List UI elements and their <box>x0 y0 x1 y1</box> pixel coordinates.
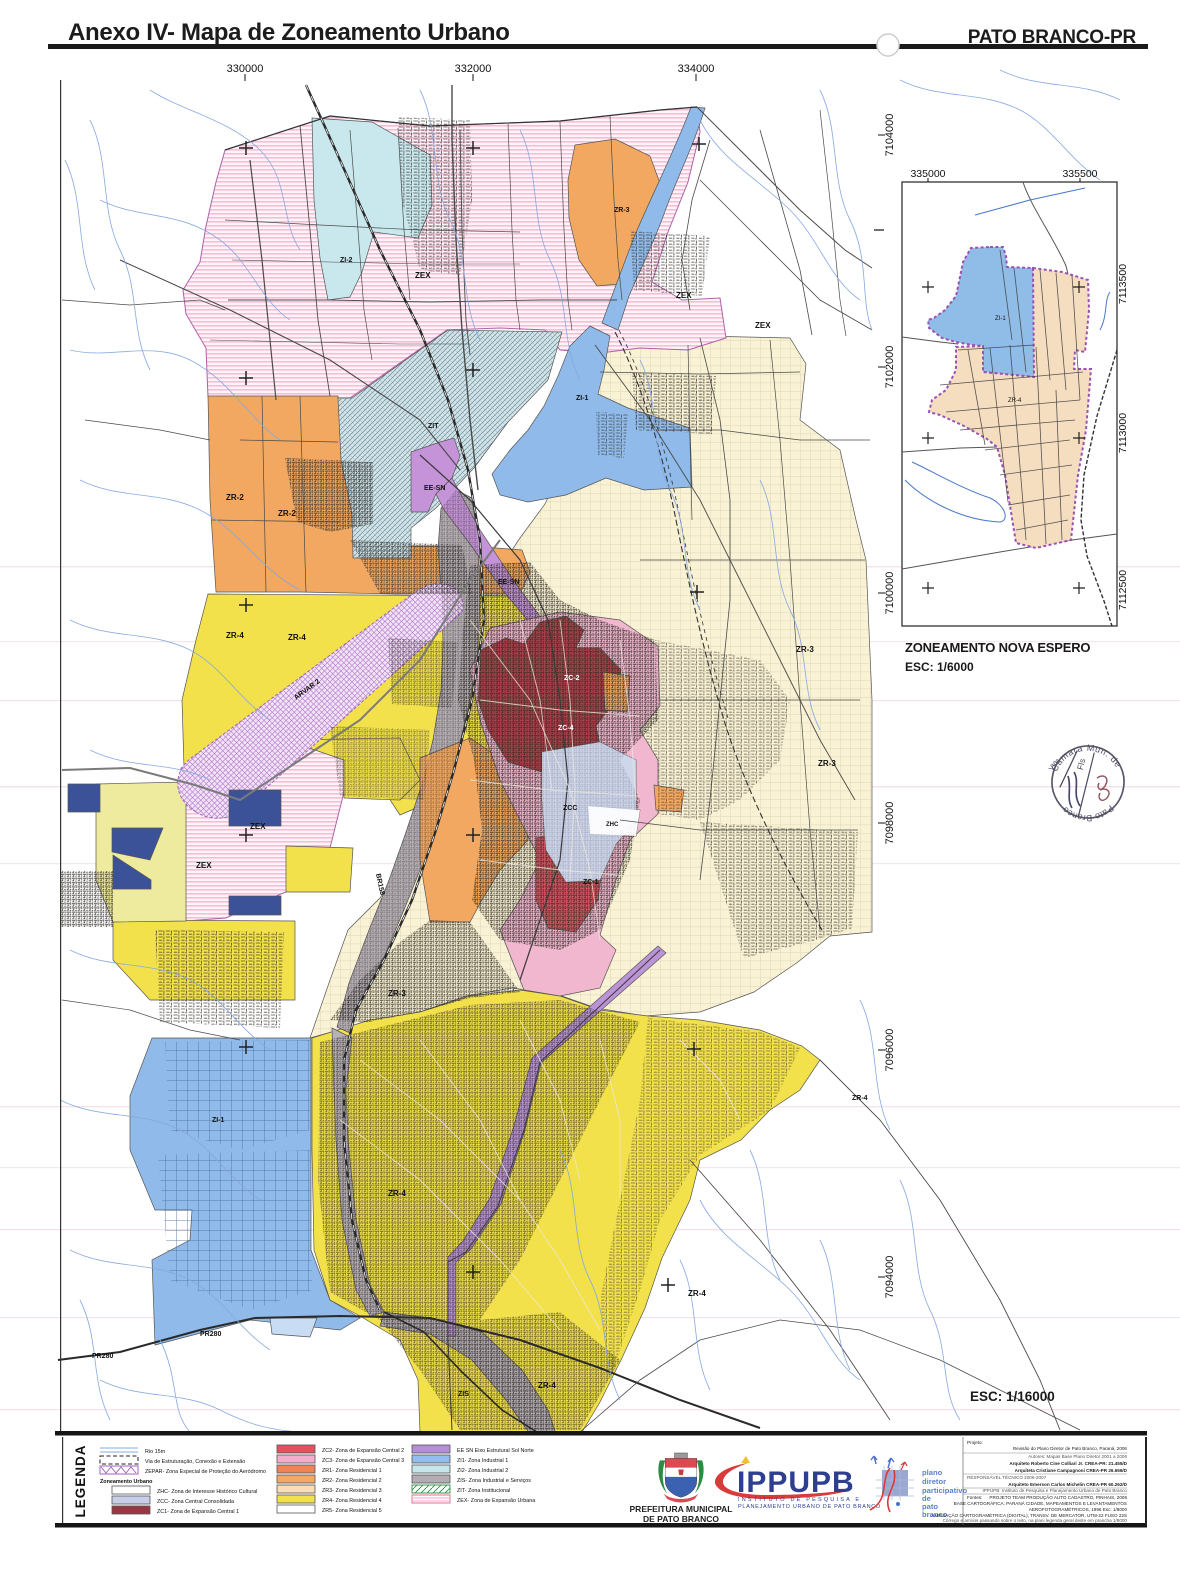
svg-text:PLANEJAMENTO URBANO DE PATO BR: PLANEJAMENTO URBANO DE PATO BRANCO <box>738 1504 881 1510</box>
svg-text:7100000: 7100000 <box>884 572 896 615</box>
svg-text:ZEX- Zona de Expansão Urbana: ZEX- Zona de Expansão Urbana <box>457 1498 535 1504</box>
svg-text:7098000: 7098000 <box>884 802 896 845</box>
svg-text:ZC-2: ZC-2 <box>564 675 580 682</box>
svg-text:ZR2- Zona Residencial 2: ZR2- Zona Residencial 2 <box>322 1478 382 1484</box>
svg-text:334000: 334000 <box>678 63 715 75</box>
svg-text:EE-SN: EE-SN <box>424 485 445 492</box>
svg-text:330000: 330000 <box>227 63 264 75</box>
svg-text:Zoneamento Urbano: Zoneamento Urbano <box>100 1479 153 1485</box>
svg-text:LEGENDA: LEGENDA <box>73 1444 88 1517</box>
svg-text:Anexo IV- Mapa de Zoneamento: Anexo IV- Mapa de Zoneamento Urbano <box>68 19 510 46</box>
svg-text:BASE CARTOGRÁFICA: PARANÁ CIDA: BASE CARTOGRÁFICA: PARANÁ CIDADE, MAPEAM… <box>954 1500 1127 1506</box>
svg-text:ESC: 1/16000: ESC: 1/16000 <box>970 1389 1055 1404</box>
svg-text:ZR-3: ZR-3 <box>388 989 406 998</box>
svg-text:AEROFOTOGRAMÉTRICOS, 1996 Esc: AEROFOTOGRAMÉTRICOS, 1996 Esc: 1/8000 <box>1029 1506 1128 1512</box>
svg-text:7102000: 7102000 <box>884 346 896 389</box>
svg-text:ZC-4: ZC-4 <box>558 725 574 732</box>
svg-text:ZR-4: ZR-4 <box>288 633 306 642</box>
svg-text:7113500: 7113500 <box>1117 264 1129 304</box>
svg-text:PREFEITURA MUNICIPAL: PREFEITURA MUNICIPAL <box>630 1504 733 1514</box>
svg-text:ZC-1: ZC-1 <box>583 879 599 886</box>
svg-text:ZR4- Zona Residencial 4: ZR4- Zona Residencial 4 <box>322 1498 382 1504</box>
svg-text:Rio 15m: Rio 15m <box>145 1449 166 1455</box>
svg-text:ZR-4: ZR-4 <box>1008 398 1022 404</box>
svg-text:Arquiteto Roberto Cine Colliar: Arquiteto Roberto Cine Colliari Jr. CREA… <box>1009 1461 1127 1466</box>
svg-text:IPPUPB: IPPUPB <box>737 1466 855 1499</box>
svg-text:ZR-4: ZR-4 <box>388 1189 406 1198</box>
svg-text:Córrego e arroios passando sob: Córrego e arroios passando sobre o leito… <box>943 1518 1128 1523</box>
svg-text:ZR-3: ZR-3 <box>614 207 630 214</box>
svg-text:Autores: Mapas Base Plano Dire: Autores: Mapas Base Plano Diretor 2001 a… <box>1028 1454 1127 1459</box>
svg-text:ZEPAR- Zona Especial de Proteç: ZEPAR- Zona Especial de Proteção do Aeró… <box>145 1469 266 1475</box>
svg-text:ZR-4: ZR-4 <box>852 1095 868 1102</box>
svg-text:PR280: PR280 <box>200 1331 222 1338</box>
svg-text:ZEX: ZEX <box>196 861 212 870</box>
svg-text:Arquiteta Cristiane Campagnoni: Arquiteta Cristiane Campagnoni CREA-PR 2… <box>1015 1468 1128 1473</box>
svg-text:ZR3- Zona Residencial 3: ZR3- Zona Residencial 3 <box>322 1488 382 1494</box>
svg-text:IPPUPB: Instituto de Pesquisa: IPPUPB: Instituto de Pesquisa e Planejam… <box>982 1488 1127 1493</box>
svg-text:ZHC- Zona de Interesse Históri: ZHC- Zona de Interesse Histórico Cultura… <box>157 1489 257 1495</box>
svg-text:ZC1- Zona de Expansão Central: ZC1- Zona de Expansão Central 1 <box>157 1509 239 1515</box>
svg-text:ZI-1: ZI-1 <box>212 1117 225 1124</box>
svg-text:diretor: diretor <box>922 1477 946 1486</box>
svg-text:Revisão do Plano Diretor de Pa: Revisão do Plano Diretor de Pato Branco,… <box>1013 1446 1128 1451</box>
svg-text:PROJETO TEAM PRODUÇÃO AUTO CAD: PROJETO TEAM PRODUÇÃO AUTO CADASTRO, PIN… <box>989 1494 1127 1500</box>
svg-text:ZEX: ZEX <box>755 321 771 330</box>
svg-text:332000: 332000 <box>455 63 492 75</box>
svg-text:ZR-3: ZR-3 <box>796 645 814 654</box>
svg-text:EE SN Eixo Estrutural Sol Nort: EE SN Eixo Estrutural Sol Norte <box>457 1448 534 1454</box>
svg-text:7113000: 7113000 <box>1117 413 1129 453</box>
svg-text:Arquiteto Emerson Carlos Miche: Arquiteto Emerson Carlos Michelin CREA-P… <box>1008 1482 1127 1487</box>
svg-text:ZI-1: ZI-1 <box>995 316 1006 322</box>
svg-text:ZCC- Zona Central Consolidada: ZCC- Zona Central Consolidada <box>157 1499 234 1505</box>
svg-text:ZIT- Zona Institucional: ZIT- Zona Institucional <box>457 1488 510 1494</box>
svg-text:ZI1- Zona Industrial 1: ZI1- Zona Industrial 1 <box>457 1458 508 1464</box>
svg-text:Projeto:: Projeto: <box>967 1440 983 1445</box>
svg-text:ZR-3: ZR-3 <box>818 759 836 768</box>
svg-text:ZCC: ZCC <box>563 805 577 812</box>
svg-text:7104000: 7104000 <box>884 114 896 157</box>
svg-text:Via de Estruturação, Conexão e: Via de Estruturação, Conexão e Extensão <box>145 1459 245 1465</box>
svg-text:ZI2- Zona Industrial 2: ZI2- Zona Industrial 2 <box>457 1468 508 1474</box>
svg-text:PR280: PR280 <box>92 1353 114 1360</box>
svg-text:ZEX: ZEX <box>250 822 266 831</box>
svg-text:ZEX: ZEX <box>676 291 692 300</box>
svg-text:ZI-1: ZI-1 <box>576 395 589 402</box>
svg-text:Fontes:: Fontes: <box>967 1495 982 1500</box>
svg-text:ZIT: ZIT <box>428 423 439 430</box>
svg-text:ZONEAMENTO NOVA ESPERO: ZONEAMENTO NOVA ESPERO <box>905 640 1090 655</box>
svg-text:7094000: 7094000 <box>884 1256 896 1299</box>
svg-text:ZR-2: ZR-2 <box>278 509 296 518</box>
svg-text:ZHC: ZHC <box>606 822 619 828</box>
svg-text:ZR-2: ZR-2 <box>226 493 244 502</box>
svg-text:ZR-4: ZR-4 <box>688 1289 706 1298</box>
svg-text:ZR-4: ZR-4 <box>226 631 244 640</box>
svg-text:ZI-2: ZI-2 <box>340 257 353 264</box>
svg-text:ESC: 1/6000: ESC: 1/6000 <box>905 660 974 674</box>
svg-text:ZC2- Zona de Expansão Central: ZC2- Zona de Expansão Central 2 <box>322 1448 404 1454</box>
svg-text:ZR-4: ZR-4 <box>538 1381 556 1390</box>
svg-text:ZR1- Zona Residencial 1: ZR1- Zona Residencial 1 <box>322 1468 382 1474</box>
svg-text:ZEX: ZEX <box>415 271 431 280</box>
svg-text:ZIS- Zona Industrial e Serviço: ZIS- Zona Industrial e Serviços <box>457 1478 531 1484</box>
svg-text:7112500: 7112500 <box>1117 570 1129 610</box>
svg-text:ZC3- Zona de Expansão Central: ZC3- Zona de Expansão Central 3 <box>322 1458 404 1464</box>
svg-text:7096000: 7096000 <box>884 1029 896 1072</box>
svg-text:RESPONSÁVEL TÉCNICO 2006-2007: RESPONSÁVEL TÉCNICO 2006-2007 <box>967 1474 1047 1480</box>
svg-text:ZIS: ZIS <box>458 1391 469 1398</box>
svg-text:ZR5- Zona Residencial 5: ZR5- Zona Residencial 5 <box>322 1508 382 1514</box>
svg-text:INSTITUTO DE PESQUISA E: INSTITUTO DE PESQUISA E <box>738 1497 861 1503</box>
svg-text:EE-SN: EE-SN <box>498 579 519 586</box>
svg-text:DE PATO BRANCO: DE PATO BRANCO <box>643 1514 719 1524</box>
svg-text:plano: plano <box>922 1468 943 1477</box>
